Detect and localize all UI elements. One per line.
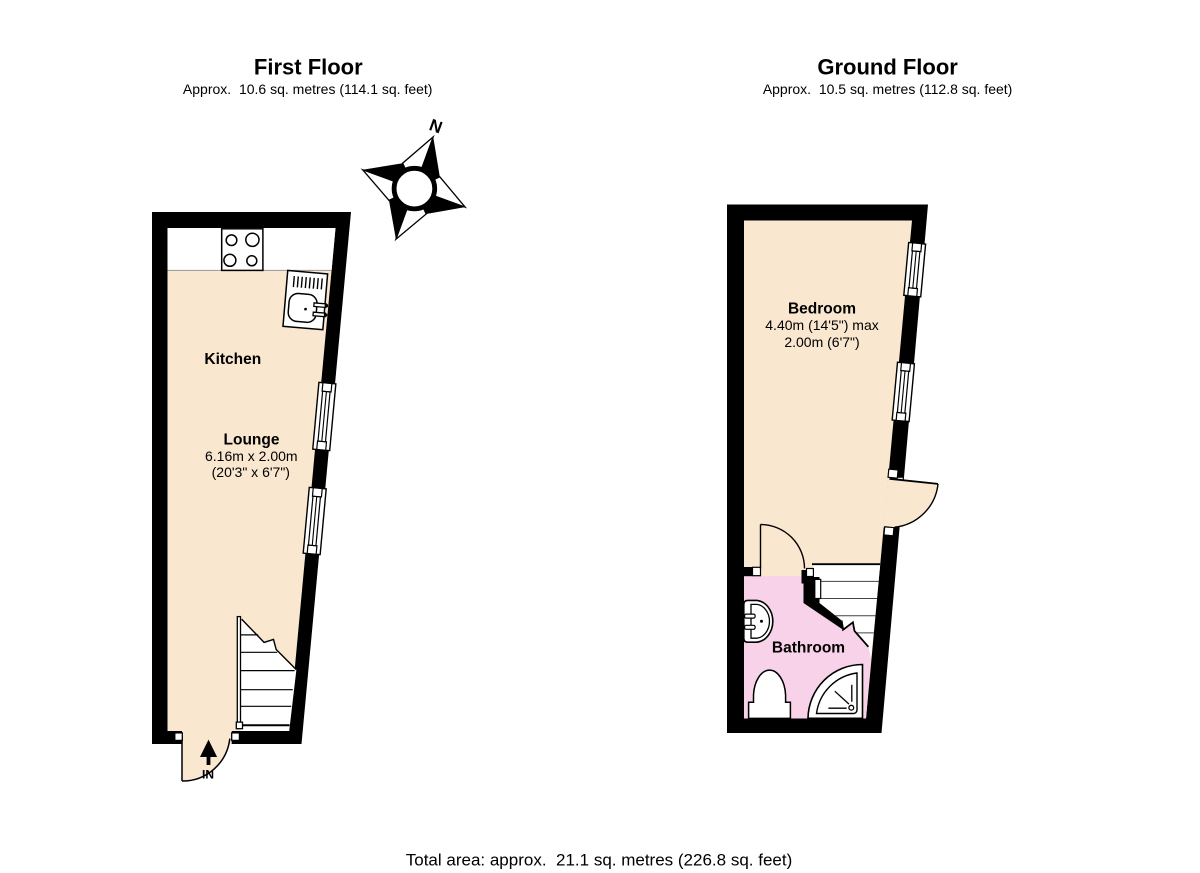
svg-text:First Floor: First Floor (254, 55, 363, 80)
svg-text:6.16m x 2.00m: 6.16m x 2.00m (205, 448, 298, 464)
svg-text:IN: IN (202, 768, 214, 782)
svg-text:Approx. 10.5 sq. metres (112.: Approx. 10.5 sq. metres (112.8 sq. feet) (763, 81, 1013, 97)
svg-text:Lounge: Lounge (224, 432, 280, 449)
svg-text:Kitchen: Kitchen (204, 351, 261, 368)
svg-text:Bathroom: Bathroom (772, 640, 845, 657)
svg-text:Ground Floor: Ground Floor (817, 55, 958, 80)
svg-text:4.40m (14'5") max: 4.40m (14'5") max (765, 317, 878, 333)
svg-text:2.00m (6'7"): 2.00m (6'7") (784, 334, 859, 350)
svg-text:Total area: approx. 21.1 sq.: Total area: approx. 21.1 sq. metres (226… (406, 851, 792, 870)
svg-text:(20'3" x 6'7"): (20'3" x 6'7") (212, 464, 290, 480)
svg-text:Bedroom: Bedroom (788, 301, 856, 318)
svg-text:Approx. 10.6 sq. metres (114.: Approx. 10.6 sq. metres (114.1 sq. feet) (183, 81, 433, 97)
